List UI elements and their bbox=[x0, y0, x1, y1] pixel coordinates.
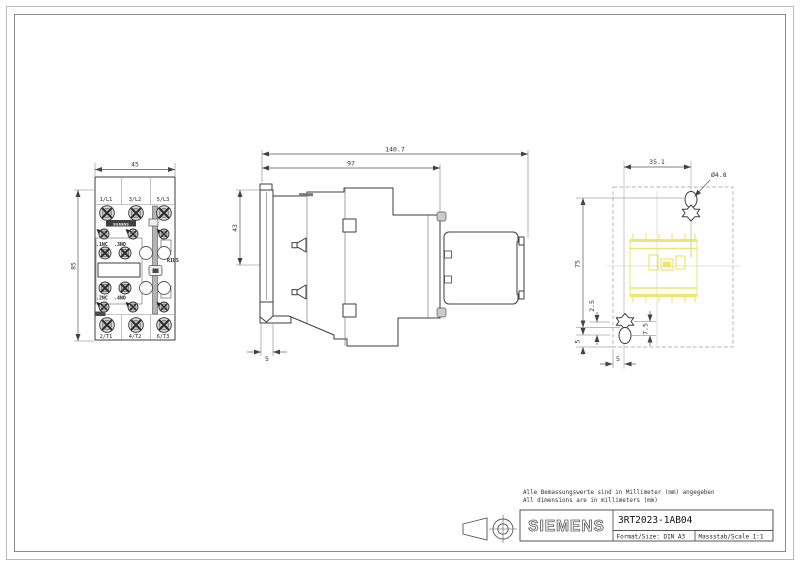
terminal-labels-top: 1/L1 3/L2 5/L3 bbox=[100, 197, 170, 203]
drawing-canvas: 45 85 1/L1 3/L2 5/L3 bbox=[0, 0, 800, 566]
dimension-notes: Alle Bemassungswerte sind in Millimeter … bbox=[523, 490, 715, 504]
aux-label-4NO: .4NO bbox=[114, 296, 126, 302]
dim-side-total: 140.7 bbox=[385, 146, 405, 154]
siemens-logo: SIEMENS bbox=[528, 518, 605, 535]
terminal-screws-bottom bbox=[100, 318, 172, 333]
terminal-label-3L2: 3/L2 bbox=[129, 197, 142, 203]
dim-edge-offset: 5 bbox=[574, 339, 582, 343]
engineering-drawing-page: 45 85 1/L1 3/L2 5/L3 bbox=[0, 0, 800, 566]
side-view: 140.7 97 43 5 bbox=[231, 146, 528, 364]
rear-highlight-drawing bbox=[630, 234, 697, 303]
terminal-label-4T2: 4/T2 bbox=[129, 334, 142, 340]
scale-label: Massstab/Scale 1:1 bbox=[699, 534, 764, 541]
format-size-label: Format/Size: DIN A3 bbox=[617, 534, 686, 541]
front-view: 45 85 1/L1 3/L2 5/L3 bbox=[70, 161, 179, 342]
device-brand-plate: SIEMENS bbox=[106, 219, 158, 227]
part-number: 3RT2023-1AB04 bbox=[618, 515, 693, 526]
aux-label-2NC: .2NC bbox=[96, 296, 108, 302]
terminal-screws-top bbox=[100, 206, 172, 221]
projection-symbol bbox=[463, 515, 517, 543]
dim-hole-diameter: Ø4.8 bbox=[711, 171, 727, 179]
rear-view: 35.1 Ø4.8 75 5 2.5 7.5 5 bbox=[574, 158, 741, 369]
dim-hole-spacing: 35.1 bbox=[649, 158, 665, 166]
note-german: Alle Bemassungswerte sind in Millimeter … bbox=[523, 490, 715, 496]
dim-side-height: 43 bbox=[231, 224, 239, 232]
terminal-label-1L1: 1/L1 bbox=[100, 197, 113, 203]
label-window bbox=[98, 263, 140, 277]
rear-view-dimensions: 35.1 Ø4.8 75 5 2.5 7.5 5 bbox=[574, 158, 727, 368]
title-block: SIEMENS 3RT2023-1AB04 Format/Size: DIN A… bbox=[520, 510, 773, 541]
side-housing bbox=[273, 188, 446, 346]
coil-indicator bbox=[149, 266, 162, 276]
projection-circle-icon bbox=[489, 515, 517, 543]
dim-slot-offset: 7.5 bbox=[642, 323, 650, 335]
magnet-coil-block bbox=[444, 232, 524, 304]
dim-front-height: 85 bbox=[70, 262, 78, 270]
dim-base-offset: 5 bbox=[616, 355, 620, 363]
terminal-label-5L3: 5/L3 bbox=[157, 197, 170, 203]
series-text: RIUS bbox=[167, 258, 179, 264]
keyhole-top bbox=[682, 192, 700, 222]
dim-front-width: 45 bbox=[131, 161, 139, 169]
dim-rail-width: 5 bbox=[265, 355, 269, 363]
type-label-tag bbox=[96, 312, 106, 317]
projection-cone-icon bbox=[463, 518, 487, 540]
dim-mount-height: 75 bbox=[574, 260, 582, 268]
keyhole-bottom bbox=[616, 314, 634, 344]
note-english: All dimensions are in millimeters (mm) bbox=[523, 498, 658, 504]
device-brand-text: SIEMENS bbox=[113, 222, 129, 226]
terminal-label-2T1: 2/T1 bbox=[100, 334, 113, 340]
dim-offset-small: 2.5 bbox=[588, 300, 596, 312]
terminal-labels-bottom: 2/T1 4/T2 6/T3 bbox=[100, 334, 170, 340]
terminal-label-6T3: 6/T3 bbox=[157, 334, 170, 340]
dim-side-body: 97 bbox=[347, 160, 355, 168]
